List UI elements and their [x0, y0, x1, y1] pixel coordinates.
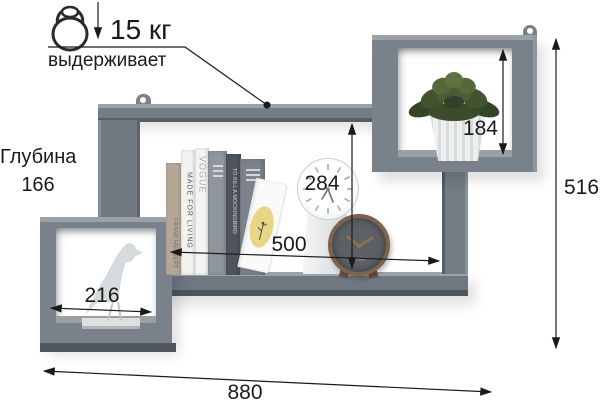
dim-line-216 — [51, 308, 151, 312]
depth-label: Глубина — [0, 146, 76, 169]
dim-label-284: 284 — [297, 173, 347, 194]
dim-label-516: 516 — [564, 177, 600, 198]
dim-label-216: 216 — [77, 285, 127, 306]
depth-block: Глубина 166 — [0, 146, 76, 197]
max-load-caption: выдерживает — [48, 50, 166, 72]
dim-label-184: 184 — [448, 118, 498, 139]
dim-label-500: 500 — [264, 234, 314, 255]
depth-value: 166 — [0, 174, 76, 197]
leader-dot — [264, 102, 271, 109]
max-load-value: 15 кг — [110, 14, 171, 46]
dim-label-880: 880 — [220, 382, 270, 403]
product-dimension-diagram: FRANK HERBERT MADE FOR LIVING VOGUE TO K… — [0, 0, 600, 403]
